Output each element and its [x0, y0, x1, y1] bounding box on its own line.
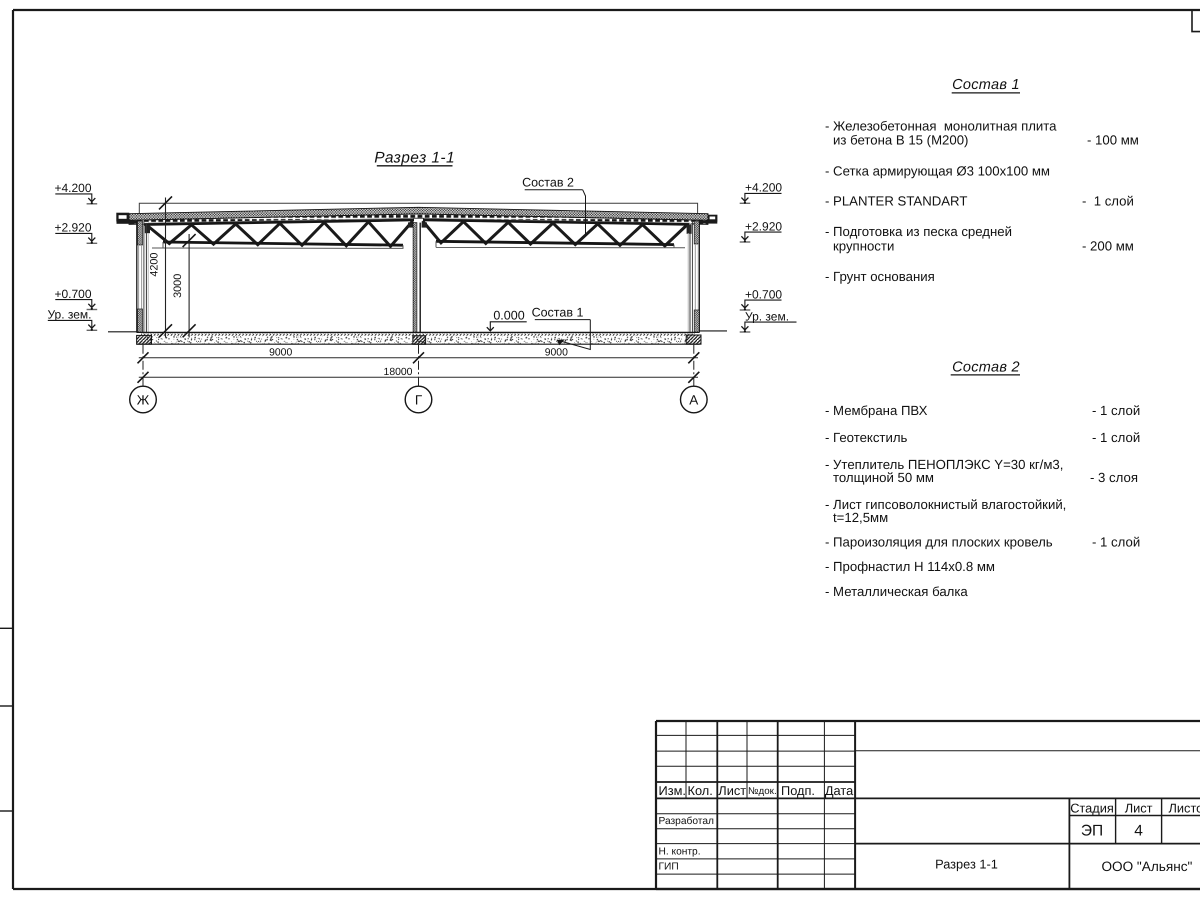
- svg-text:Изм.: Изм.: [659, 783, 686, 798]
- svg-text:Н. контр.: Н. контр.: [659, 847, 701, 858]
- svg-text:t=12,5мм: t=12,5мм: [833, 510, 888, 525]
- svg-text:- Грунт основания: - Грунт основания: [825, 269, 935, 284]
- svg-text:из бетона В 15 (М200): из бетона В 15 (М200): [833, 133, 968, 148]
- svg-text:толщиной 50 мм: толщиной 50 мм: [833, 470, 934, 485]
- svg-text:Ур. зем.: Ур. зем.: [745, 309, 789, 323]
- svg-text:Состав 1: Состав 1: [532, 305, 584, 319]
- svg-text:+4.200: +4.200: [54, 181, 91, 195]
- svg-text:+2.920: +2.920: [745, 219, 782, 233]
- svg-text:- Железобетонная монолитная п: - Железобетонная монолитная плита: [825, 118, 1057, 133]
- svg-text:ЭП: ЭП: [1081, 823, 1103, 840]
- svg-text:Ж: Ж: [137, 392, 150, 407]
- svg-text:- Подготовка из песка средней: - Подготовка из песка средней: [825, 224, 1012, 239]
- svg-text:Лист: Лист: [718, 783, 746, 798]
- svg-text:- 1 слой: - 1 слой: [1092, 403, 1140, 418]
- svg-text:9000: 9000: [545, 347, 568, 358]
- svg-text:- 1 слой: - 1 слой: [1082, 194, 1134, 209]
- svg-text:Подп.: Подп.: [781, 783, 815, 798]
- svg-text:- 1 слой: - 1 слой: [1092, 534, 1140, 549]
- svg-text:- Геотекстиль: - Геотекстиль: [825, 430, 908, 445]
- svg-text:Разрез 1-1: Разрез 1-1: [374, 150, 455, 167]
- svg-text:ООО "Альянс": ООО "Альянс": [1101, 859, 1192, 874]
- svg-text:0.000: 0.000: [493, 309, 524, 323]
- svg-text:3000: 3000: [172, 274, 184, 298]
- svg-text:Стадия: Стадия: [1070, 801, 1114, 816]
- svg-text:- 100 мм: - 100 мм: [1087, 133, 1139, 148]
- svg-text:4200: 4200: [148, 253, 160, 277]
- svg-text:+4.200: +4.200: [745, 181, 782, 195]
- svg-text:Разрез 1-1: Разрез 1-1: [935, 856, 998, 871]
- svg-text:18000: 18000: [384, 367, 413, 378]
- svg-text:+2.920: +2.920: [54, 221, 91, 235]
- svg-text:ГИП: ГИП: [659, 862, 679, 873]
- svg-text:А: А: [689, 392, 698, 407]
- svg-text:9000: 9000: [269, 347, 292, 358]
- svg-text:Состав 2: Состав 2: [522, 176, 574, 190]
- svg-text:Г: Г: [415, 392, 423, 407]
- svg-text:Лист: Лист: [1125, 801, 1153, 816]
- svg-text:Разработал: Разработал: [659, 816, 715, 827]
- svg-text:- Сетка армирующая Ø3 100х100: - Сетка армирующая Ø3 100х100 мм: [825, 163, 1050, 178]
- svg-text:Листов: Листов: [1169, 801, 1200, 816]
- svg-text:Дата: Дата: [825, 783, 854, 798]
- svg-text:- Мембрана ПВХ: - Мембрана ПВХ: [825, 403, 928, 418]
- svg-text:- 1 слой: - 1 слой: [1092, 430, 1140, 445]
- svg-text:- Профнастил Н 114х0.8 мм: - Профнастил Н 114х0.8 мм: [825, 559, 995, 574]
- svg-text:№док.: №док.: [748, 786, 777, 797]
- svg-text:Кол.: Кол.: [688, 783, 713, 798]
- svg-text:- Пароизоляция для плоских кро: - Пароизоляция для плоских кровель: [825, 534, 1053, 549]
- svg-text:+0.700: +0.700: [54, 287, 91, 301]
- svg-text:Ур. зем.: Ур. зем.: [47, 308, 91, 322]
- svg-text:крупности: крупности: [833, 238, 894, 253]
- svg-text:4: 4: [1134, 823, 1143, 840]
- svg-text:Состав 1: Состав 1: [952, 77, 1020, 93]
- svg-text:- 200 мм: - 200 мм: [1082, 238, 1134, 253]
- svg-text:Состав 2: Состав 2: [952, 359, 1020, 375]
- svg-text:- Металлическая балка: - Металлическая балка: [825, 584, 968, 599]
- svg-text:- PLANTER STANDART: - PLANTER STANDART: [825, 194, 967, 209]
- svg-text:+0.700: +0.700: [745, 287, 782, 301]
- svg-text:- 3 слоя: - 3 слоя: [1090, 470, 1138, 485]
